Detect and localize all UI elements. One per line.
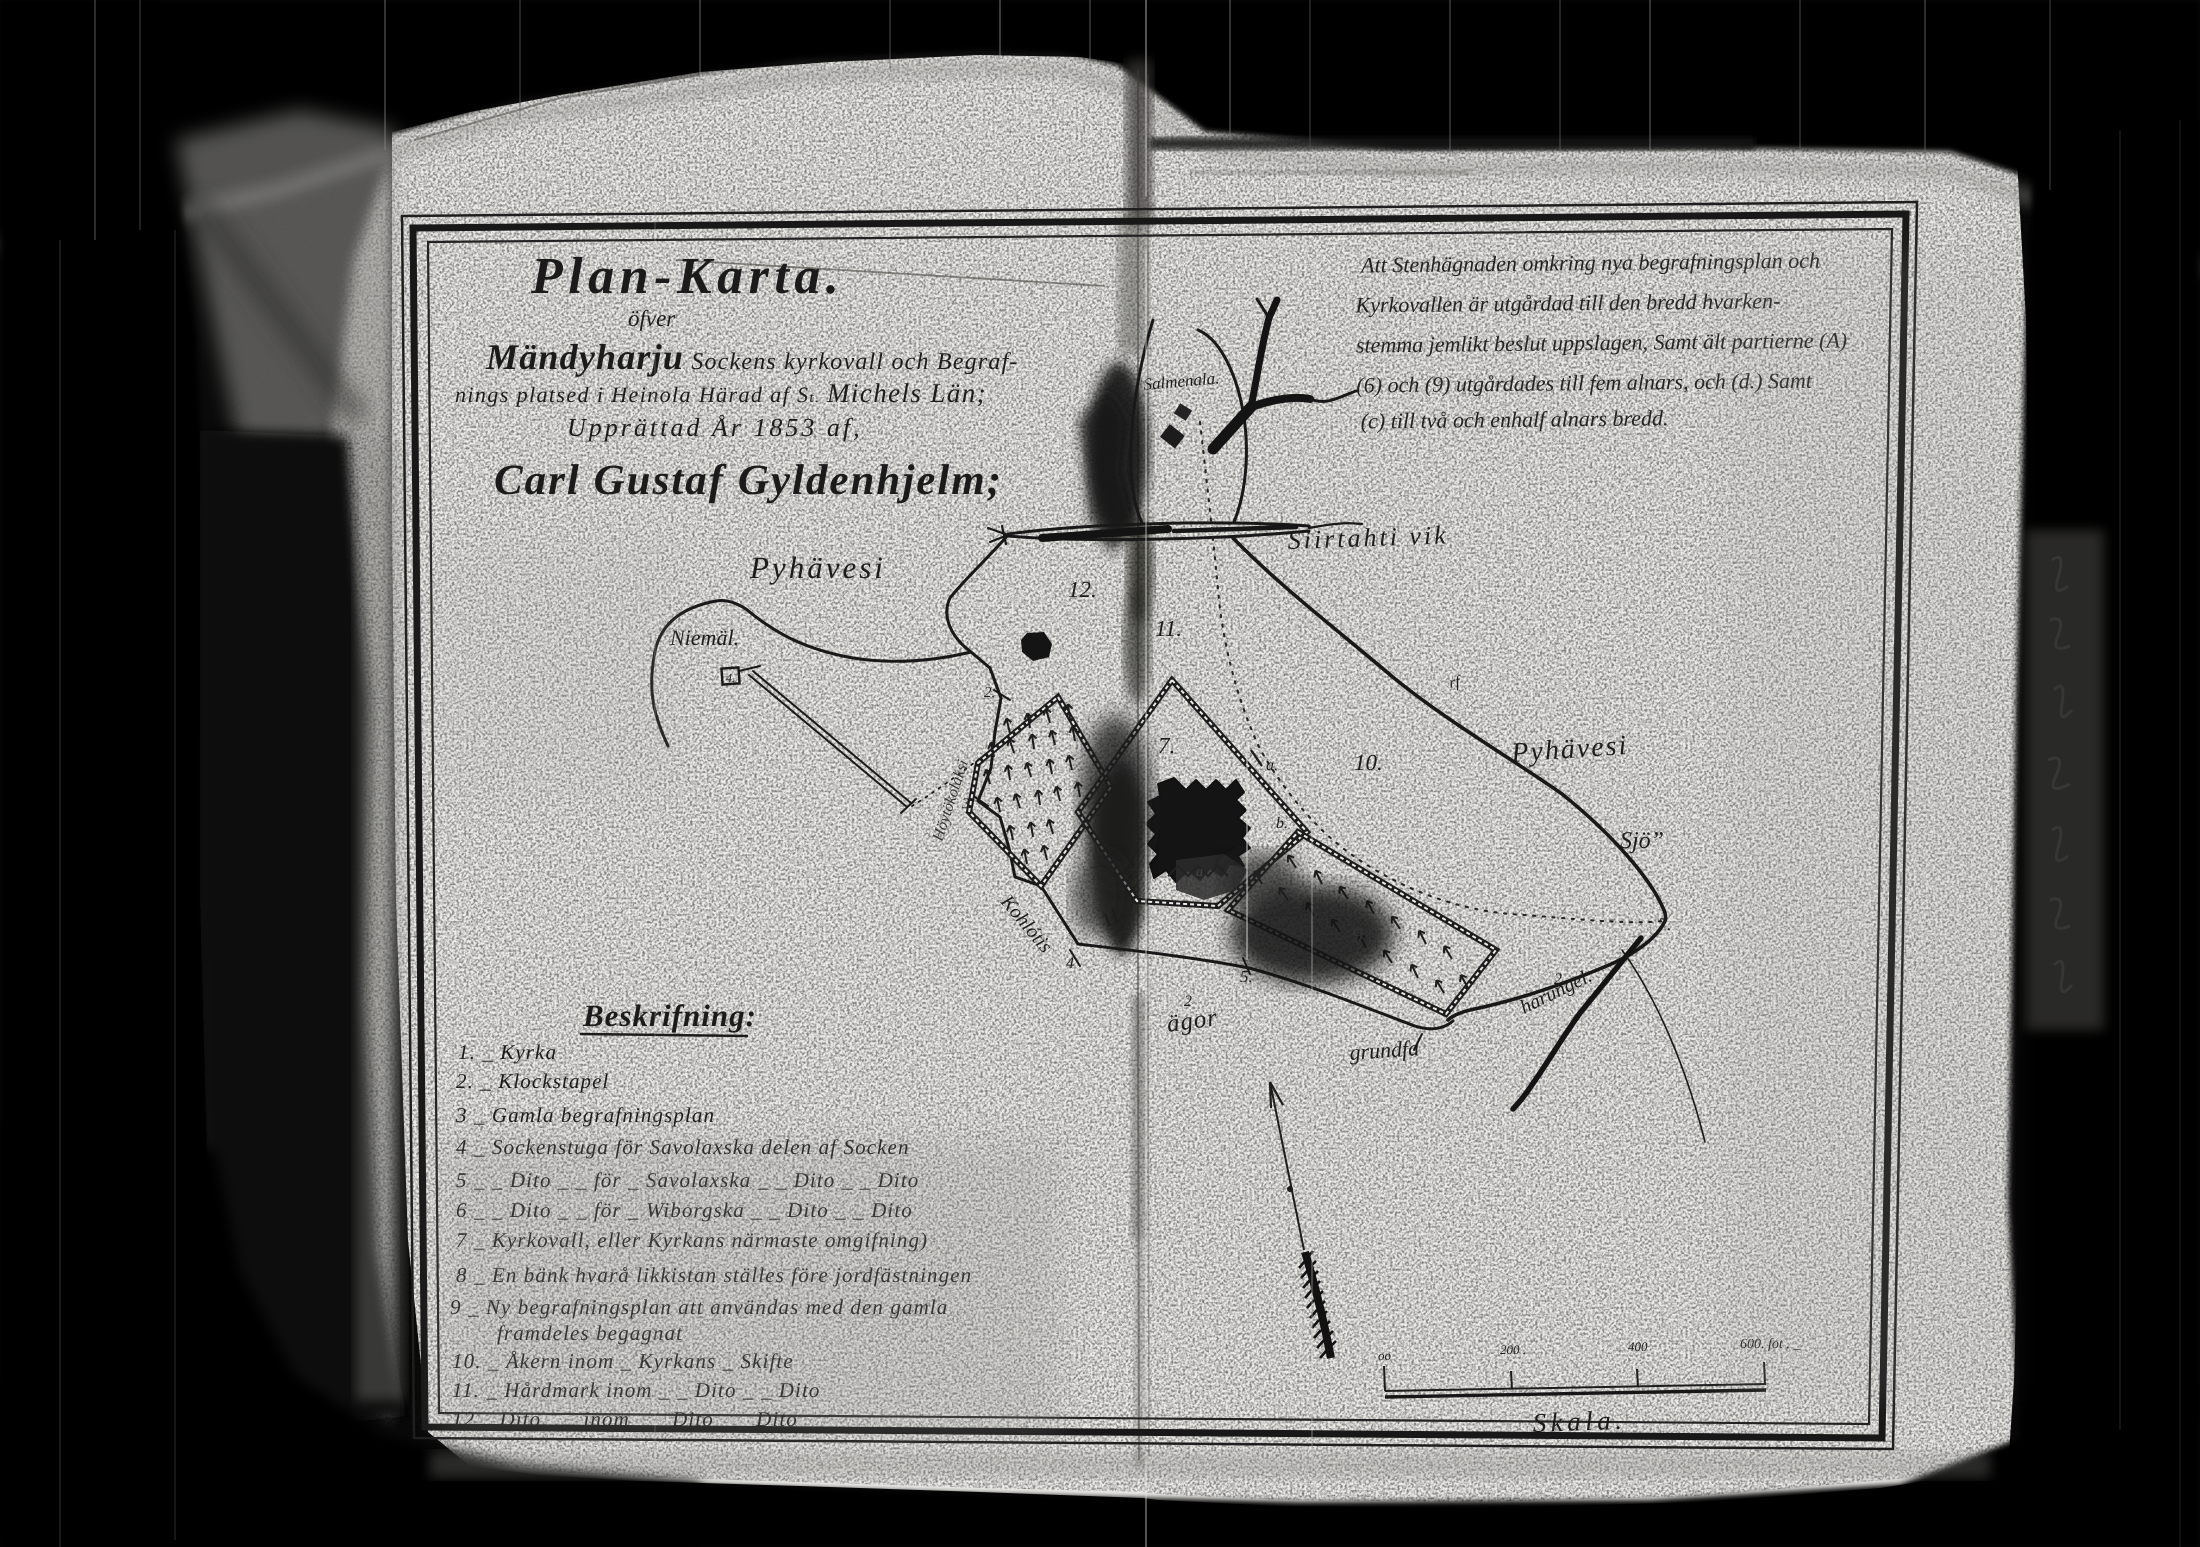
- svg-text:Beskrifning:: Beskrifning:: [582, 998, 757, 1033]
- svg-text:2. _ Klockstapel: 2. _ Klockstapel: [456, 1069, 610, 1093]
- svg-text:nings platsed i Heinola Härad: nings platsed i Heinola Härad af St. Mic…: [455, 378, 987, 408]
- svg-text:Sjö”: Sjö”: [1620, 828, 1664, 854]
- svg-text:5.: 5.: [1240, 967, 1253, 986]
- svg-text:b.: b.: [1276, 815, 1288, 832]
- svg-text:Upprättad År 1853 af,: Upprättad År 1853 af,: [567, 413, 863, 442]
- svg-text:9: 9: [1352, 922, 1363, 947]
- svg-text:a.: a.: [1266, 757, 1278, 774]
- svg-text:Carl Gustaf Gyldenhjelm;: Carl Gustaf Gyldenhjelm;: [494, 457, 1003, 504]
- svg-text:12.: 12.: [1068, 577, 1097, 602]
- svg-text:3: 3: [961, 796, 970, 812]
- svg-text:Pyhävesi: Pyhävesi: [749, 550, 886, 585]
- svg-text:Kyrkovallen är utgårdad till d: Kyrkovallen är utgårdad till den bredd h…: [1354, 288, 1780, 317]
- svg-text:1. _ Kyrka: 1. _ Kyrka: [458, 1040, 557, 1064]
- svg-text:3 _ Gamla begrafningsplan: 3 _ Gamla begrafningsplan: [455, 1103, 715, 1127]
- svg-text:7.: 7.: [1658, 914, 1672, 934]
- svg-text:Siirtahti vik: Siirtahti vik: [1287, 520, 1449, 555]
- svg-text:400: 400: [1628, 1339, 1648, 1354]
- svg-text:oo: oo: [1378, 1348, 1392, 1363]
- svg-text:11.: 11.: [1155, 616, 1182, 641]
- svg-text:200 .: 200 .: [1500, 1342, 1526, 1357]
- svg-text:Skala.: Skala.: [1532, 1405, 1627, 1438]
- svg-text:(c) till två och enhalf alnars: (c) till två och enhalf alnars bredd.: [1361, 405, 1669, 433]
- svg-text:öfver: öfver: [628, 306, 676, 331]
- svg-text:4.: 4.: [726, 671, 735, 685]
- svg-text:2: 2: [1184, 993, 1192, 1010]
- svg-text:Plan-Karta.: Plan-Karta.: [530, 248, 844, 305]
- svg-text:grundfa: grundfa: [1349, 1035, 1420, 1065]
- svg-text:7.: 7.: [1158, 733, 1175, 758]
- svg-text:2.: 2.: [1554, 971, 1566, 988]
- svg-text:10.: 10.: [1354, 750, 1383, 775]
- svg-text:2.: 2.: [984, 685, 995, 701]
- svg-text:a: a: [1196, 865, 1203, 880]
- svg-text:4: 4: [1066, 955, 1074, 972]
